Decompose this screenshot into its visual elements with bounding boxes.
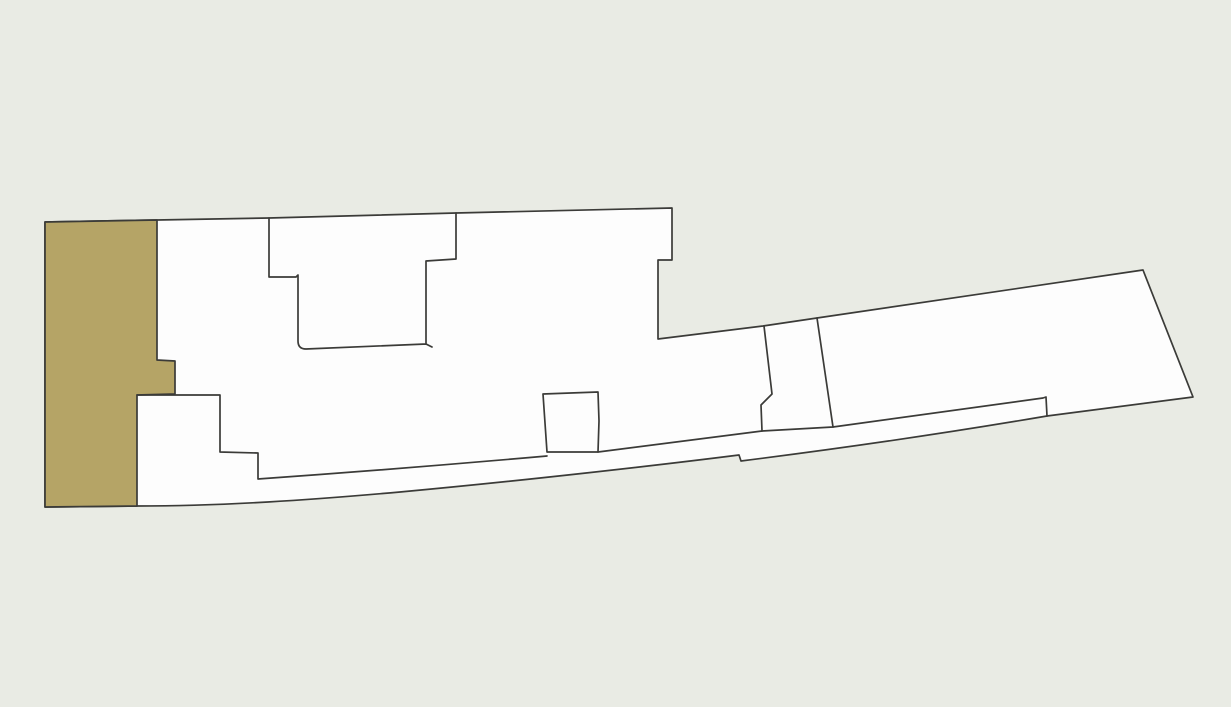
composite-parcel[interactable] — [45, 208, 1193, 507]
parcel-map — [0, 0, 1231, 707]
parcel-map-viewport — [0, 0, 1231, 707]
